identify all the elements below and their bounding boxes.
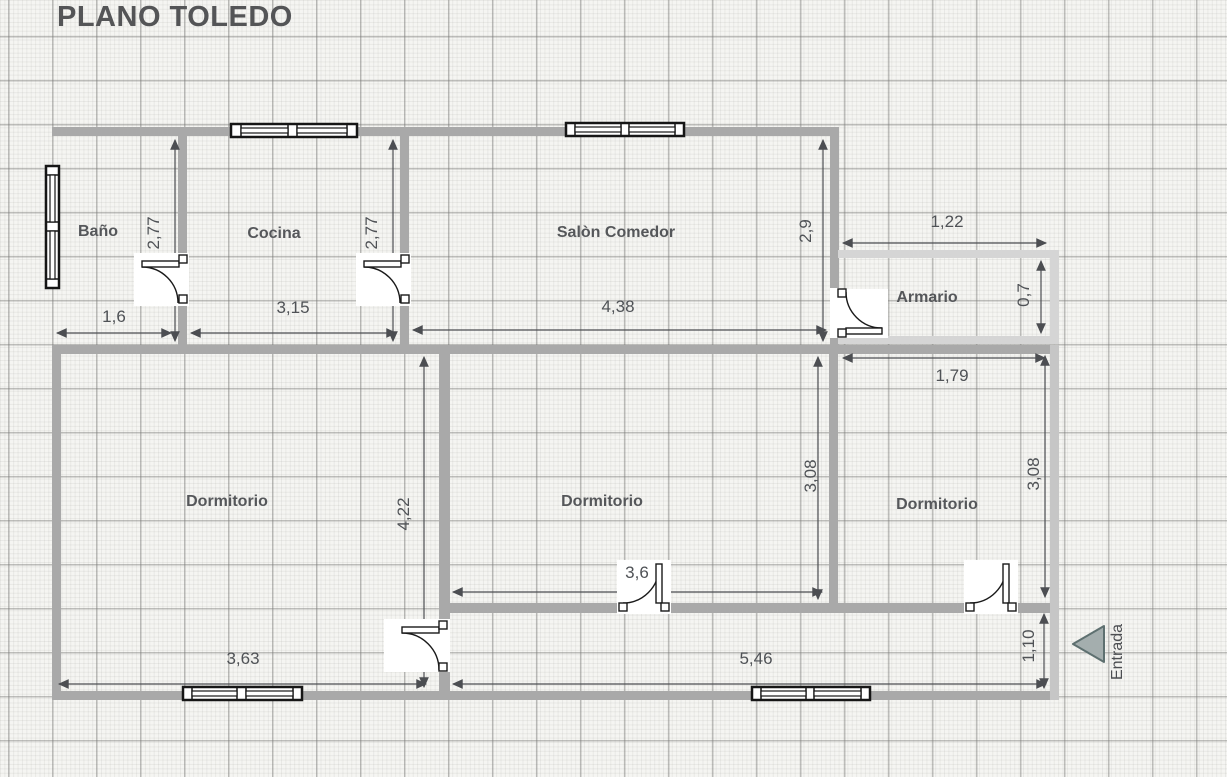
- room-label-living-room[interactable]: Salòn Comedor: [557, 224, 675, 242]
- page-title: PLANO TOLEDO: [57, 1, 293, 34]
- room-label-bedroom-middle[interactable]: Dormitorio: [561, 493, 643, 511]
- door-icon-closet[interactable]: [830, 288, 888, 338]
- dim-hallway-height: 1,10: [1019, 629, 1039, 662]
- closet-wall-top: [838, 250, 1059, 258]
- door-icon-bedroom-right[interactable]: [964, 560, 1018, 614]
- dim-living-height: 2,9: [796, 219, 816, 243]
- room-label-closet[interactable]: Armario: [896, 289, 957, 307]
- wall-kitchen-living: [400, 127, 409, 354]
- entrance-arrow-icon[interactable]: [1073, 626, 1104, 662]
- dim-kitchen-height: 2,77: [362, 216, 382, 249]
- dim-bathroom-height: 2,77: [144, 216, 164, 249]
- dim-bedroom-right-width: 1,79: [935, 366, 968, 386]
- door-icon-bathroom[interactable]: [134, 253, 189, 306]
- room-label-bedroom-left[interactable]: Dormitorio: [186, 493, 268, 511]
- dim-closet-height: 0,7: [1014, 283, 1034, 307]
- window-icon-kitchen[interactable]: [231, 124, 357, 137]
- window-icon-bathroom[interactable]: [46, 166, 59, 288]
- wall-bathroom-kitchen: [178, 127, 187, 354]
- dim-bedroom-right-height: 3,08: [1024, 457, 1044, 490]
- entrance-label: Entrada: [1109, 624, 1127, 680]
- walls: [52, 127, 1059, 700]
- window-icon-hallway[interactable]: [752, 687, 870, 700]
- plan-drawing: [0, 0, 1227, 777]
- wall-bedrooms-divider-right: [829, 345, 838, 613]
- dim-bedroom-left-height: 4,22: [394, 497, 414, 530]
- window-icon-bedroom-left[interactable]: [183, 687, 302, 700]
- dim-living-width: 4,38: [601, 297, 634, 317]
- wall-middle-divider: [52, 345, 1059, 354]
- closet-wall-right: [1050, 250, 1059, 344]
- wall-right-outer: [1050, 345, 1059, 700]
- dim-hallway-width: 5,46: [739, 649, 772, 669]
- room-label-kitchen[interactable]: Cocina: [247, 225, 300, 243]
- window-icon-living[interactable]: [566, 123, 684, 136]
- wall-left-outer: [52, 345, 61, 700]
- dim-bathroom-width: 1,6: [102, 307, 126, 327]
- room-label-bedroom-right[interactable]: Dormitorio: [896, 496, 978, 514]
- door-icon-bedroom-left[interactable]: [384, 619, 450, 672]
- dim-bedroom-left-width: 3,63: [226, 649, 259, 669]
- dim-kitchen-width: 3,15: [276, 298, 309, 318]
- wall-top: [52, 127, 838, 136]
- windows: [46, 123, 870, 700]
- dim-closet-width: 1,22: [930, 212, 963, 232]
- dim-bedroom-middle-height: 3,08: [801, 459, 821, 492]
- room-label-bathroom[interactable]: Baño: [78, 223, 118, 241]
- floor-plan-canvas: PLANO TOLEDO Baño Cocina Salòn Comedor A…: [0, 0, 1227, 777]
- door-icon-kitchen[interactable]: [356, 253, 411, 306]
- dim-bedroom-middle-width: 3,6: [625, 563, 649, 583]
